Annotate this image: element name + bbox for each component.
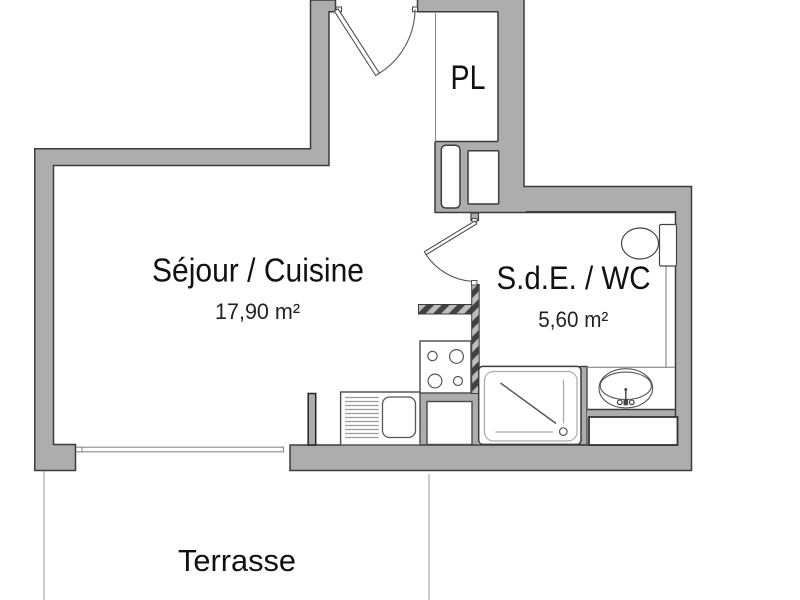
svg-text:S.d.E. / WC: S.d.E. / WC bbox=[497, 260, 651, 296]
svg-text:PL: PL bbox=[451, 59, 486, 97]
svg-text:Séjour / Cuisine: Séjour / Cuisine bbox=[152, 252, 364, 289]
svg-text:5,60 m²: 5,60 m² bbox=[538, 307, 608, 332]
svg-text:17,90 m²: 17,90 m² bbox=[215, 299, 300, 324]
svg-text:Terrasse: Terrasse bbox=[178, 543, 296, 578]
